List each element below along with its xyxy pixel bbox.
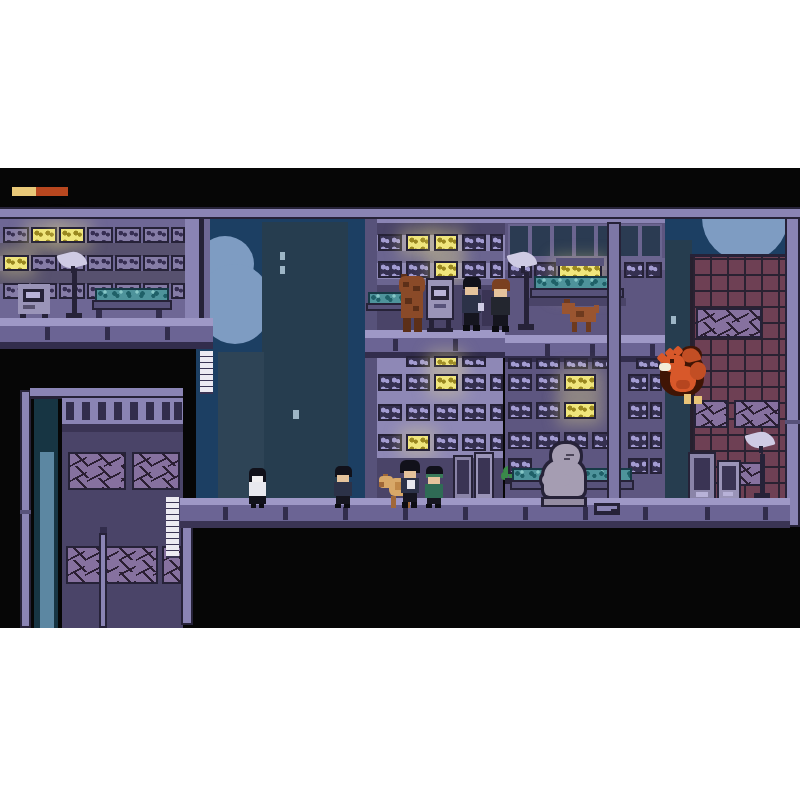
health-bar-filled	[12, 187, 36, 196]
hud-layer	[0, 168, 800, 628]
screenshot-page	[0, 0, 800, 800]
game-viewport[interactable]	[0, 168, 800, 628]
health-bar-depleted	[36, 187, 68, 196]
